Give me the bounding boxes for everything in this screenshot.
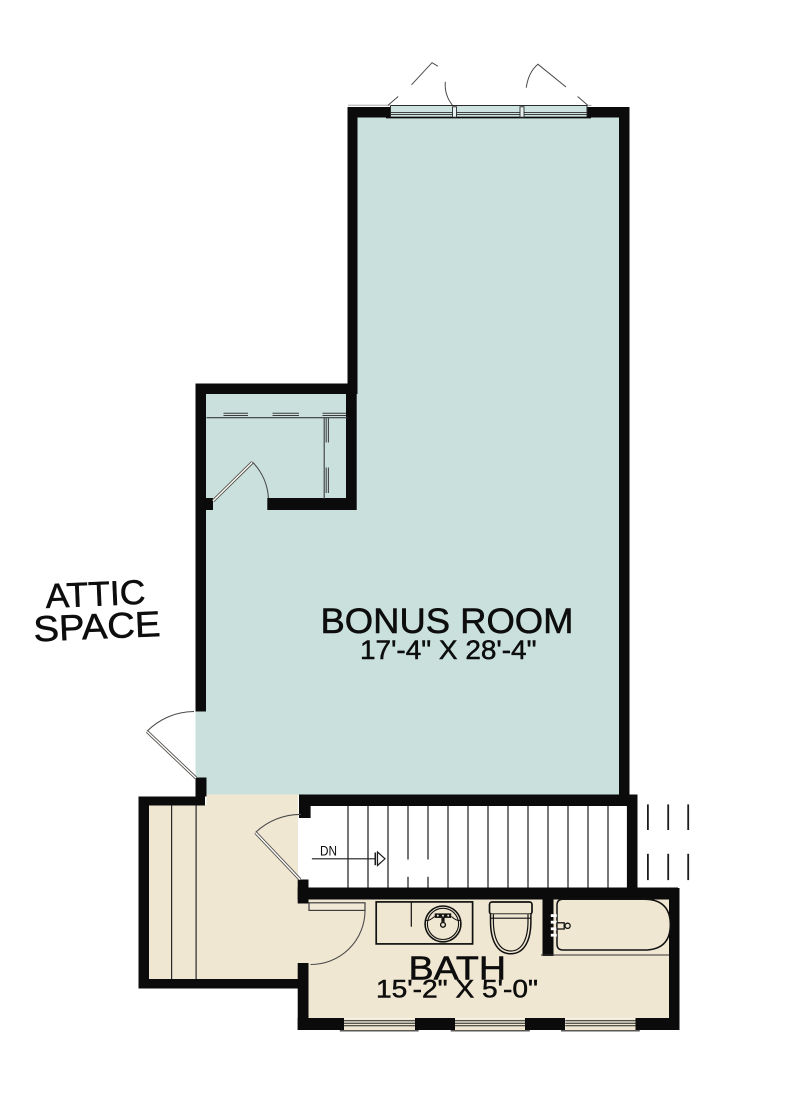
svg-text:17'-4" X 28'-4": 17'-4" X 28'-4" bbox=[360, 635, 537, 665]
svg-text:DN: DN bbox=[320, 843, 337, 859]
svg-text:15'-2" X 5'-0": 15'-2" X 5'-0" bbox=[376, 976, 538, 1004]
svg-text:SPACE: SPACE bbox=[33, 603, 162, 650]
